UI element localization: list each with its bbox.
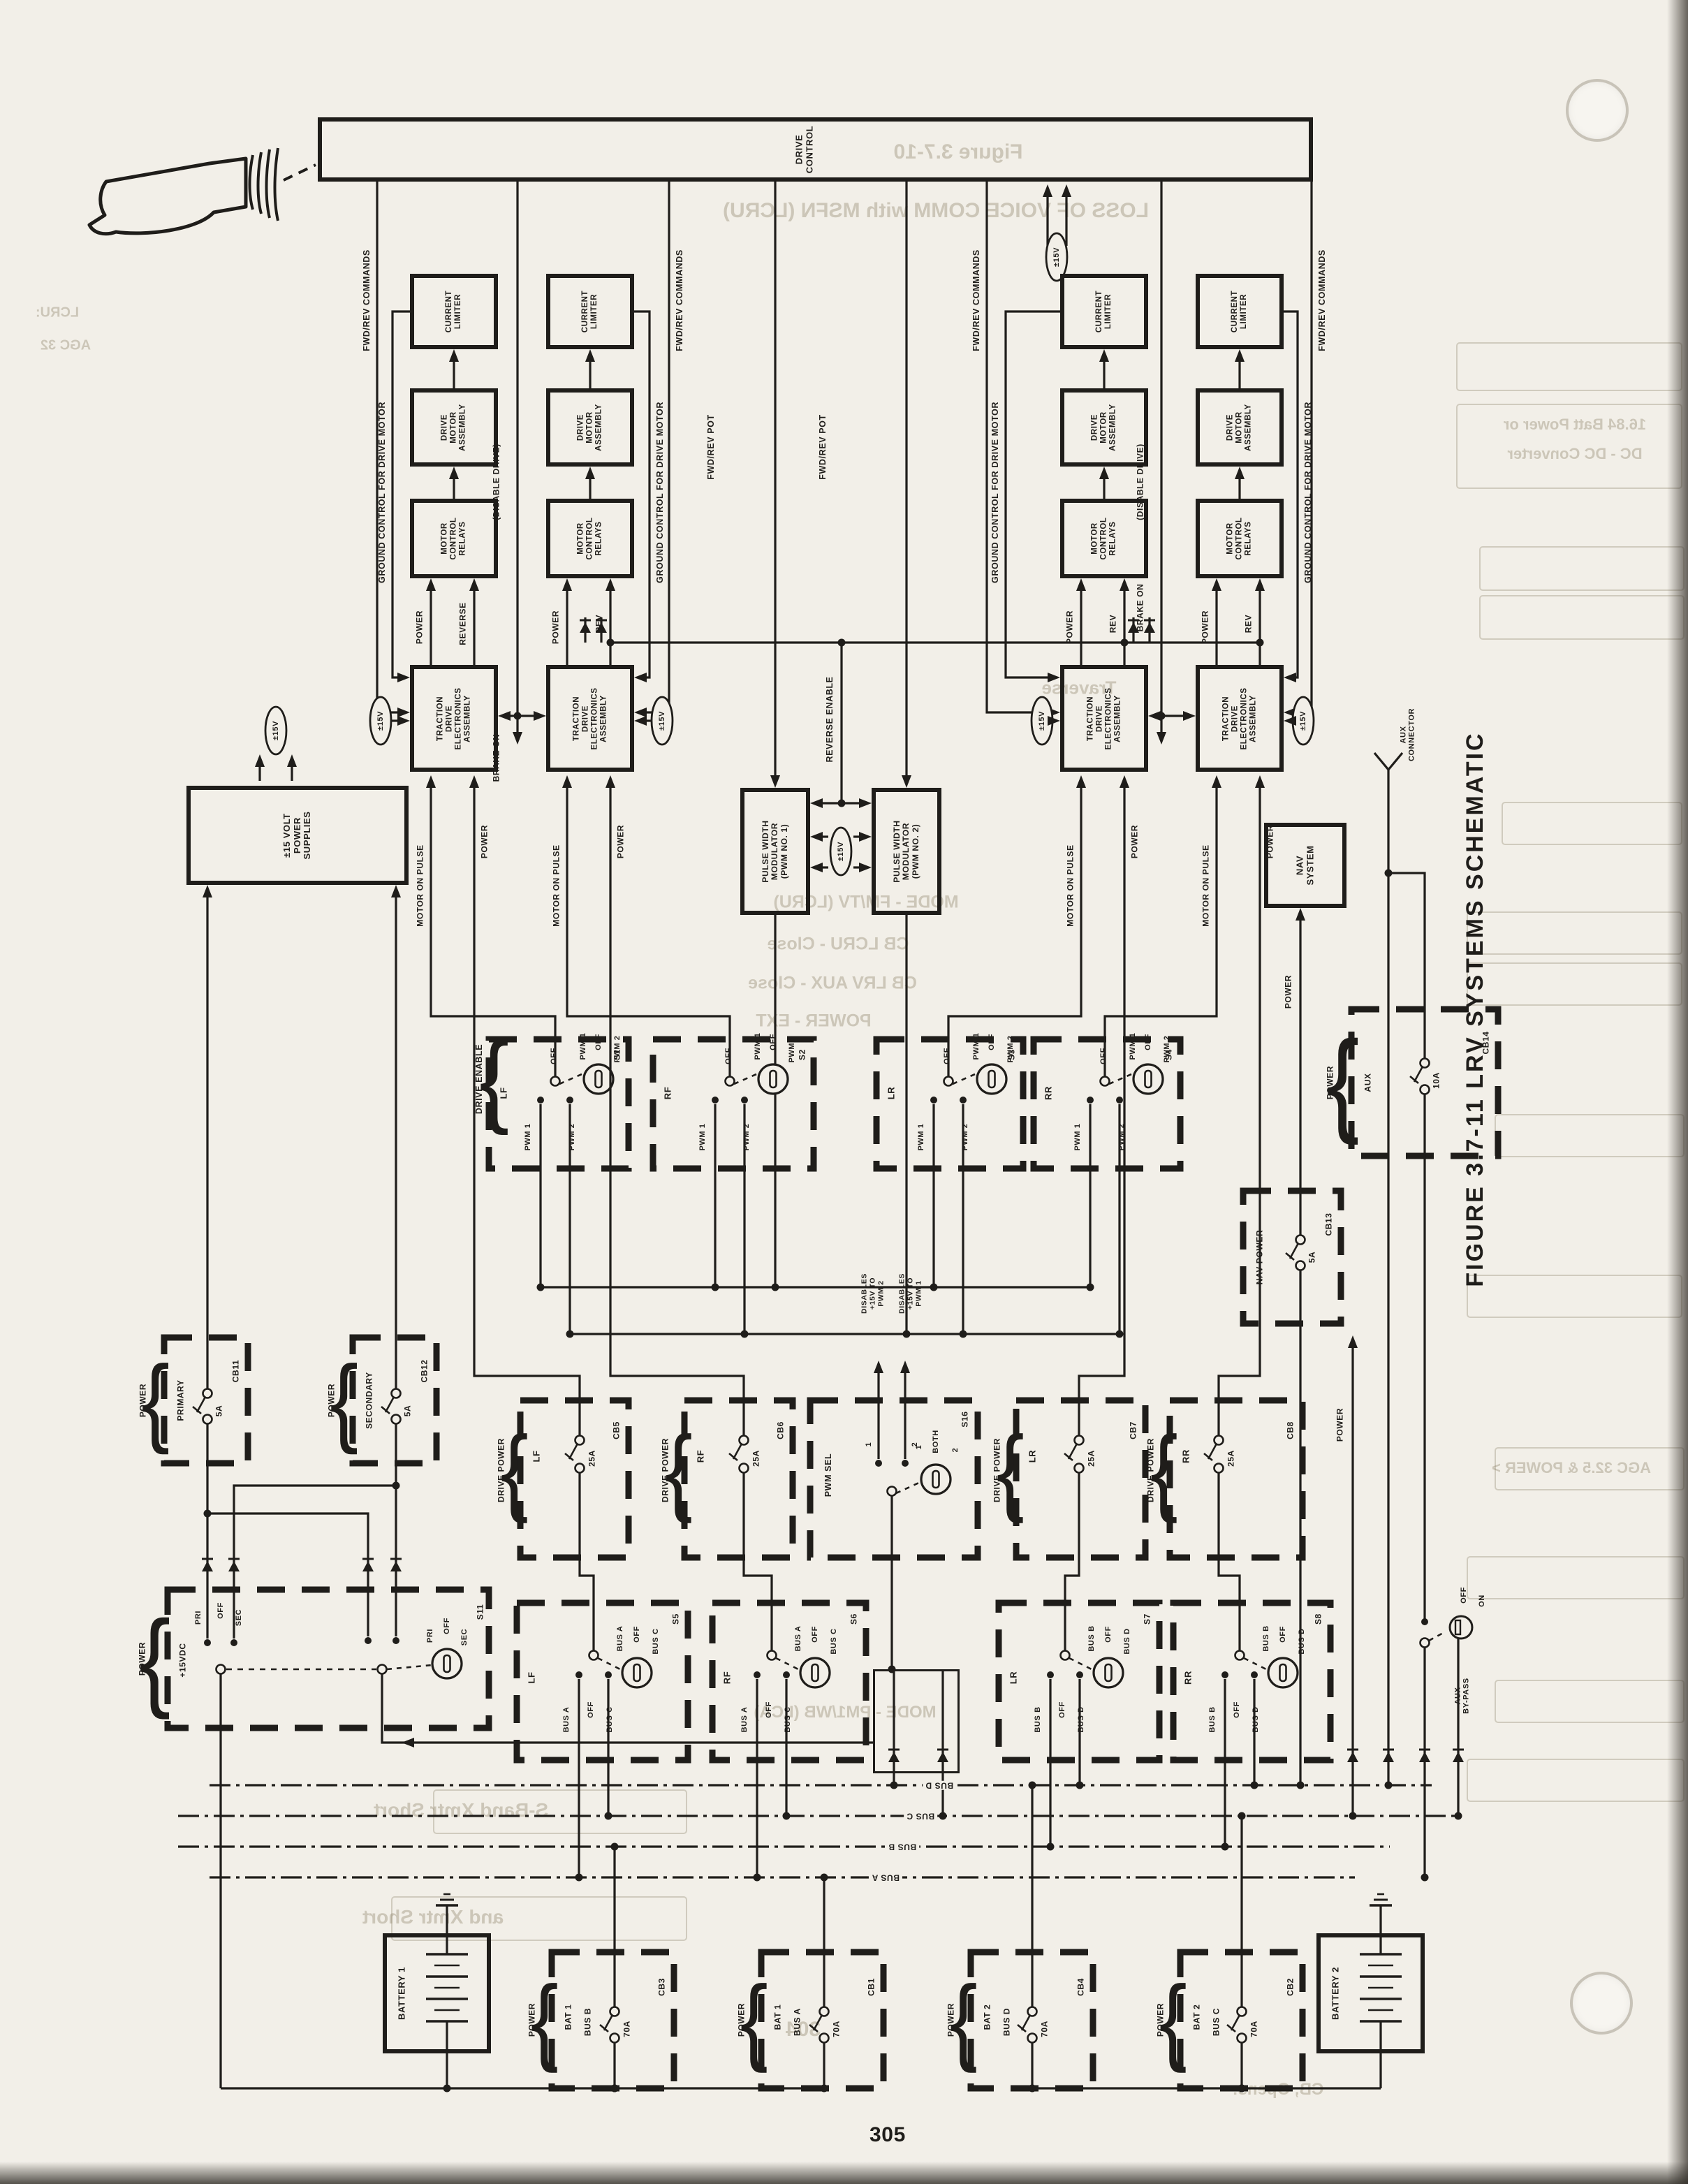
desig-CB8: CB8 xyxy=(1286,1421,1295,1439)
arrowhead-icon xyxy=(1183,711,1196,721)
contact-open xyxy=(203,1415,212,1424)
box-drive-control xyxy=(318,117,1313,182)
cmd-label-lr: FWD/REV COMMANDS xyxy=(971,249,981,351)
dial-rr-a: BUS B xyxy=(1262,1625,1270,1651)
contact-open xyxy=(610,2034,619,2043)
arrowhead-icon xyxy=(426,775,436,788)
dial-pwm2-lf: PWM 2 xyxy=(613,1035,622,1062)
arrowhead-icon xyxy=(1120,578,1129,591)
power-label-lr: POWER xyxy=(1065,610,1074,644)
diode-icon xyxy=(1453,1752,1464,1762)
busname-label-cb4: BUS D xyxy=(1002,2008,1011,2036)
wire xyxy=(234,1486,396,1639)
contact-open xyxy=(820,2007,829,2016)
arrowhead-icon xyxy=(534,711,546,721)
pos-lr-b: BUS D xyxy=(1077,1706,1085,1732)
diode-icon xyxy=(1419,1752,1430,1762)
wheel-rr-power: RR xyxy=(1182,1449,1192,1463)
brace-label-cb1: POWER xyxy=(737,2003,746,2037)
pot-label-2: FWD/REV POT xyxy=(818,414,828,479)
contact-open xyxy=(1421,1639,1430,1648)
rating-CB3: 70A xyxy=(622,2021,631,2037)
label-power-supplies: ±15 VOLT POWER SUPPLIES xyxy=(282,811,313,859)
label-pwm-2: PULSE WIDTH MODULATOR (PWM NO. 2) xyxy=(893,820,920,882)
junction-dot xyxy=(1238,1812,1246,1820)
bat-label-cb1: BAT 1 xyxy=(773,2005,782,2030)
contact-open xyxy=(1214,1436,1224,1445)
pos-rr-a: BUS B xyxy=(1208,1706,1217,1732)
wire xyxy=(567,786,730,1077)
switch-lever xyxy=(1022,2015,1030,2030)
desig-CB7: CB7 xyxy=(1129,1421,1138,1439)
label-lf-3: TRACTION DRIVE ELECTRONICS ASSEMBLY xyxy=(436,687,472,749)
arrowhead-icon xyxy=(859,832,872,842)
dial-pwm1-rr: PWM 1 xyxy=(1129,1032,1137,1060)
wire xyxy=(1388,873,1425,1058)
desig-s11: S11 xyxy=(476,1604,485,1620)
pwr-label-rr: POWER xyxy=(1265,825,1275,858)
brace-label-cb3: POWER xyxy=(527,2003,536,2037)
label-lf-1: DRIVE MOTOR ASSEMBLY xyxy=(441,404,468,451)
rotary-switch-icon xyxy=(977,1064,1006,1094)
arrowhead-icon xyxy=(1048,716,1060,726)
v15-label: ±15V xyxy=(658,711,666,731)
arrowhead-icon xyxy=(585,349,595,362)
rating-CB14: 10A xyxy=(1432,1072,1441,1089)
disable-drive-label-1: (DISABLE DRIVE) xyxy=(1136,444,1145,520)
diode-icon xyxy=(580,622,591,633)
desig-CB11: CB11 xyxy=(231,1360,240,1382)
reverse-enable-label: REVERSE ENABLE xyxy=(825,676,835,762)
arrowhead-icon xyxy=(770,775,780,788)
contact-open xyxy=(392,1415,401,1424)
mop-label-rf: MOTOR ON PULSE xyxy=(552,844,561,927)
junction-dot xyxy=(821,1874,828,1882)
arrowhead-icon xyxy=(1296,908,1305,921)
s11-l-off: OFF xyxy=(216,1602,225,1619)
s11-dial-pri: PRI xyxy=(426,1629,434,1643)
page-number: 305 xyxy=(869,2123,906,2147)
aux-bypass-label: AUX BY-PASS xyxy=(1454,1678,1472,1714)
arrowhead-icon xyxy=(606,578,615,591)
label-lr-2: MOTOR CONTROL RELAYS xyxy=(1091,517,1118,559)
arrowhead-icon xyxy=(426,578,436,591)
wheel-lr-bus: LR xyxy=(1009,1671,1020,1685)
pos-off-lf: OFF xyxy=(550,1048,558,1064)
contact-open xyxy=(378,1665,387,1674)
label-battery-1: BATTERY 1 xyxy=(397,1967,408,2020)
dial-pwm1-lr: PWM 1 xyxy=(972,1032,981,1060)
switch-lever xyxy=(733,1444,742,1459)
diode-icon xyxy=(1347,1752,1358,1762)
arrowhead-icon xyxy=(397,673,410,682)
pos-pwm2-lf: PWM 2 xyxy=(568,1123,576,1150)
arrowhead-icon xyxy=(562,775,572,788)
dashed-group-outline xyxy=(489,1039,629,1168)
bypass-off-label: OFF xyxy=(1460,1587,1468,1604)
s11-label: +15VDC xyxy=(178,1643,187,1677)
pwr-label-lr: POWER xyxy=(1130,825,1139,858)
desig-CB6: CB6 xyxy=(776,1421,785,1439)
pwm-sel-dial-1: 1 xyxy=(915,1445,923,1450)
wire xyxy=(207,1514,368,1636)
mop-label-rr: MOTOR ON PULSE xyxy=(1201,844,1210,927)
switch-lever xyxy=(1208,1444,1217,1459)
label-rf-1: DRIVE MOTOR ASSEMBLY xyxy=(577,404,604,451)
s11-brace-label: POWER xyxy=(138,1642,147,1676)
brace-label-cb14: POWER xyxy=(1326,1066,1335,1099)
gnd-label-rf: GROUND CONTROL FOR DRIVE MOTOR xyxy=(655,402,665,583)
dashed-group-outline xyxy=(517,1603,688,1760)
arrowhead-icon xyxy=(1048,673,1060,682)
junction-dot xyxy=(1087,1284,1094,1291)
contact-dot xyxy=(392,1637,399,1644)
mop-label-lf: MOTOR ON PULSE xyxy=(416,844,425,927)
label-lf-0: CURRENT LIMITER xyxy=(445,291,463,332)
arrowhead-icon xyxy=(1284,716,1296,726)
wheel-rf-enable: RF xyxy=(663,1087,674,1100)
desig-S16: S16 xyxy=(960,1411,969,1427)
pos-pwm1-lf: PWM 1 xyxy=(524,1123,532,1150)
arrowhead-icon xyxy=(397,708,410,717)
rotary-switch-icon xyxy=(584,1064,613,1094)
contact-dot xyxy=(605,1671,612,1678)
drive-power-label-rf: DRIVE POWER xyxy=(661,1438,670,1502)
arrowhead-icon xyxy=(1212,775,1221,788)
contact-open xyxy=(1296,1261,1305,1270)
dashed-group-outline xyxy=(810,1400,978,1558)
arrowhead-icon xyxy=(1120,775,1129,788)
junction-dot xyxy=(939,1812,947,1820)
dashed-group-outline xyxy=(1016,1400,1145,1558)
diode-icon xyxy=(228,1561,240,1571)
desig-CB14: CB14 xyxy=(1481,1031,1490,1054)
arrowhead-icon xyxy=(449,349,459,362)
contact-dot xyxy=(741,1097,748,1104)
drive-power-label-rr: DRIVE POWER xyxy=(1146,1438,1155,1502)
wire xyxy=(392,312,410,677)
busname-label-cb3: BUS B xyxy=(583,2008,592,2036)
power-label-lf: POWER xyxy=(415,610,424,644)
bypass-on-label: ON xyxy=(1478,1595,1486,1607)
switch-lever xyxy=(569,1444,578,1459)
arrowhead-icon xyxy=(902,775,911,788)
pos-rr-b: BUS D xyxy=(1252,1706,1260,1732)
desig-S7: S7 xyxy=(1143,1613,1152,1625)
v15-label: ±15V xyxy=(837,842,845,861)
arrowhead-icon xyxy=(255,754,265,767)
v15-label: ±15V xyxy=(1299,711,1307,731)
pos-pwm1-rf: PWM 1 xyxy=(698,1123,707,1150)
s11-l-sec: SEC xyxy=(235,1609,243,1626)
arrowhead-icon xyxy=(1235,467,1245,479)
contact-open xyxy=(1421,1085,1430,1094)
arrowhead-icon xyxy=(1076,775,1086,788)
junction-dot xyxy=(1421,1874,1429,1882)
arrowhead-icon xyxy=(391,885,401,897)
arrowhead-icon xyxy=(562,578,572,591)
wire xyxy=(776,1658,798,1669)
pos-lf-b: BUS C xyxy=(606,1706,614,1732)
pos-rf-a: BUS A xyxy=(740,1707,749,1733)
label-battery-2: BATTERY 2 xyxy=(1331,1967,1342,2020)
junction-dot xyxy=(1256,639,1264,647)
arrowhead-icon xyxy=(1099,349,1109,362)
switch-lever xyxy=(197,1397,205,1412)
label-lr-1: DRIVE MOTOR ASSEMBLY xyxy=(1091,404,1118,451)
switch-lever xyxy=(814,2015,822,2030)
figure-title: FIGURE 3.7-11 LRV SYSTEMS SCHEMATIC xyxy=(1462,731,1488,1287)
rev-label-rr: REV xyxy=(1244,615,1253,633)
wheel-rf-power: RF xyxy=(696,1450,707,1463)
dial-lf-a: BUS A xyxy=(616,1626,624,1652)
rating-CB11: 5A xyxy=(214,1405,223,1416)
diode-icon xyxy=(362,1561,374,1571)
dial-pwm1-rf: PWM 1 xyxy=(754,1032,762,1060)
wire xyxy=(896,1482,920,1493)
brace-icon: { xyxy=(479,1027,509,1130)
s11-dial-sec: SEC xyxy=(460,1629,469,1646)
contact-dot xyxy=(902,1460,909,1467)
pos-pwm1-lr: PWM 1 xyxy=(917,1123,925,1150)
rotary-switch-icon xyxy=(622,1658,652,1687)
rating-CB13: 5A xyxy=(1307,1251,1316,1263)
contact-dot xyxy=(1087,1097,1094,1104)
dial-pwm2-rf: PWM 2 xyxy=(788,1035,796,1062)
arrowhead-icon xyxy=(1255,775,1265,788)
bus-feed-power-label: POWER xyxy=(1335,1408,1344,1442)
wire xyxy=(1006,312,1060,677)
contact-open xyxy=(768,1651,777,1660)
contact-open xyxy=(589,1651,599,1660)
label-rr-1: DRIVE MOTOR ASSEMBLY xyxy=(1226,404,1254,451)
brake-on-label-1: BRAKE ON xyxy=(1136,584,1145,632)
dial-lr-off: OFF xyxy=(1104,1626,1113,1643)
junction-dot xyxy=(1238,2085,1246,2093)
label-pwm-1: PULSE WIDTH MODULATOR (PWM NO. 1) xyxy=(761,820,789,882)
pos-lr-off: OFF xyxy=(1058,1701,1066,1718)
dial-lr-b: BUS D xyxy=(1123,1628,1131,1654)
wheel-lr-power: LR xyxy=(1028,1450,1039,1463)
disable-drive-label-0: (DISABLE DRIVE) xyxy=(492,444,501,520)
schematic-wiring xyxy=(0,0,1688,2184)
brake-on-label-0: BRAKE ON xyxy=(492,734,501,782)
pos-off-lr: OFF xyxy=(943,1048,951,1064)
contact-open xyxy=(1075,1436,1084,1445)
junction-dot xyxy=(1349,1812,1357,1820)
arrowhead-icon xyxy=(859,863,872,872)
desig-CB5: CB5 xyxy=(612,1421,621,1439)
arrowhead-icon xyxy=(1148,711,1161,721)
dial-off-rr: OFF xyxy=(1144,1034,1152,1050)
desig-CB12: CB12 xyxy=(420,1359,429,1382)
pos-off-rr: OFF xyxy=(1099,1048,1108,1064)
dial-rr-off: OFF xyxy=(1279,1626,1287,1643)
arrowhead-icon xyxy=(498,711,511,721)
gnd-label-lr: GROUND CONTROL FOR DRIVE MOTOR xyxy=(990,402,1000,583)
wheel-lr-enable: LR xyxy=(887,1087,897,1100)
contact-dot xyxy=(1116,1097,1123,1104)
wire xyxy=(1079,786,1124,1435)
arrowhead-icon xyxy=(634,716,647,726)
nav-feed-power-label: POWER xyxy=(1284,975,1293,1009)
desig-CB13: CB13 xyxy=(1324,1212,1333,1236)
dial-pwm2-lr: PWM 2 xyxy=(1006,1035,1015,1062)
label-lr-3: TRACTION DRIVE ELECTRONICS ASSEMBLY xyxy=(1086,687,1122,749)
contact-dot xyxy=(930,1097,937,1104)
contact-dot xyxy=(1421,1618,1428,1625)
dial-off-lf: OFF xyxy=(594,1034,603,1050)
pwm-sel-dial-both: BOTH xyxy=(932,1430,940,1453)
contact-open xyxy=(1028,2007,1037,2016)
rotary-switch-icon xyxy=(921,1465,951,1494)
junction-dot xyxy=(930,1284,938,1291)
pot-label-1: FWD/REV POT xyxy=(706,414,716,479)
dashed-group-outline xyxy=(1170,1400,1302,1558)
brace-label-cb2: POWER xyxy=(1156,2003,1165,2037)
arrowhead-icon xyxy=(1062,184,1071,197)
arrowhead-icon xyxy=(1284,673,1296,682)
pos-rf-b: BUS C xyxy=(784,1706,792,1732)
dial-rf-off: OFF xyxy=(811,1626,819,1643)
dial-pwm1-lf: PWM 1 xyxy=(579,1032,587,1060)
arrowhead-icon xyxy=(1099,467,1109,479)
switch-lever xyxy=(1290,1243,1298,1259)
rev-label-lf: REVERSE xyxy=(458,602,467,645)
dial-pwm2-rr: PWM 2 xyxy=(1163,1035,1171,1062)
rating-CB12: 5A xyxy=(403,1405,412,1416)
rotary-switch-icon xyxy=(1133,1064,1163,1094)
contact-open xyxy=(1421,1059,1430,1068)
contact-dot xyxy=(537,1097,544,1104)
label-rr-2: MOTOR CONTROL RELAYS xyxy=(1226,517,1254,559)
contact-open xyxy=(1028,2034,1037,2043)
pwr-label-rf: POWER xyxy=(616,825,625,858)
busname-label-cb1: BUS A xyxy=(793,2008,802,2036)
s11-l-pri: PRI xyxy=(194,1611,203,1625)
contact-open xyxy=(203,1389,212,1398)
contact-open xyxy=(1235,1651,1245,1660)
desig-S2: S2 xyxy=(798,1049,807,1060)
gnd-label-rr: GROUND CONTROL FOR DRIVE MOTOR xyxy=(1303,402,1313,583)
desig-CB2: CB2 xyxy=(1286,1978,1295,1996)
dial-off-rf: OFF xyxy=(769,1034,777,1050)
arrowhead-icon xyxy=(1255,578,1265,591)
inner-label-cb12: SECONDARY xyxy=(365,1372,374,1429)
rating-CB1: 70A xyxy=(832,2021,841,2037)
arrowhead-icon xyxy=(203,885,212,897)
pos-lf-off: OFF xyxy=(587,1701,595,1718)
disables-pwm2-label: DISABLES +15V TO PWM 2 xyxy=(860,1273,885,1314)
gnd-label-lf: GROUND CONTROL FOR DRIVE MOTOR xyxy=(377,402,387,583)
contact-open xyxy=(1075,1464,1084,1473)
label-rf-2: MOTOR CONTROL RELAYS xyxy=(577,517,604,559)
wire xyxy=(734,1074,756,1084)
rating-CB2: 70A xyxy=(1249,2021,1258,2037)
arrowhead-icon xyxy=(449,467,459,479)
junction-dot xyxy=(566,1331,574,1338)
bat-label-cb3: BAT 1 xyxy=(564,2005,573,2030)
desig-CB4: CB4 xyxy=(1076,1978,1085,1996)
wire xyxy=(1069,1658,1092,1669)
arrowhead-icon xyxy=(397,716,410,726)
rotary-switch-icon xyxy=(432,1649,462,1678)
contact-open xyxy=(726,1077,735,1086)
arrowhead-icon xyxy=(1157,732,1166,745)
pos-rf-off: OFF xyxy=(765,1701,773,1718)
contact-open xyxy=(740,1436,749,1445)
v15-label: ±15V xyxy=(376,711,385,731)
wire xyxy=(598,1658,620,1669)
wire xyxy=(387,1665,432,1669)
arrowhead-icon xyxy=(634,673,647,682)
contact-dot xyxy=(566,1097,573,1104)
wheel-rf-bus: RF xyxy=(723,1671,733,1685)
label-drive-control: DRIVE CONTROL xyxy=(794,126,814,173)
wire xyxy=(1244,1658,1266,1669)
pos-lr-a: BUS B xyxy=(1034,1706,1042,1732)
label-rr-3: TRACTION DRIVE ELECTRONICS ASSEMBLY xyxy=(1221,687,1258,749)
wire xyxy=(1374,753,1388,770)
hand-controller-icon xyxy=(89,148,316,234)
scanned-schematic-page: Figure 3.7-10LOSS OF VOICE COMM with MSF… xyxy=(0,0,1688,2184)
wire xyxy=(1105,786,1217,1077)
dial-lf-b: BUS C xyxy=(652,1628,660,1654)
arrowhead-icon xyxy=(513,732,522,745)
arrowhead-icon xyxy=(287,754,297,767)
pos-pwm2-lr: PWM 2 xyxy=(961,1123,969,1150)
junction-dot xyxy=(712,1284,719,1291)
contact-dot xyxy=(1221,1671,1228,1678)
pos-pwm1-rr: PWM 1 xyxy=(1073,1123,1082,1150)
v15-label: ±15V xyxy=(272,721,280,740)
pos-off-rf: OFF xyxy=(724,1048,733,1064)
box-junction-box xyxy=(873,1669,960,1773)
dial-lf-off: OFF xyxy=(633,1626,641,1643)
pos-rr-off: OFF xyxy=(1233,1701,1241,1718)
bus-label-bus-a: BUS A xyxy=(869,1872,902,1882)
arrowhead-icon xyxy=(810,832,823,842)
junction-dot xyxy=(1385,1782,1393,1789)
rev-label-rf: REV xyxy=(594,615,603,633)
dial-off-lr: OFF xyxy=(988,1034,996,1050)
brace-label-cb12: POWER xyxy=(327,1384,336,1417)
junction-dot xyxy=(537,1284,545,1291)
arrowhead-icon xyxy=(469,578,479,591)
contact-open xyxy=(551,1077,560,1086)
cmd-label-lf: FWD/REV COMMANDS xyxy=(362,249,372,351)
arrowhead-icon xyxy=(585,467,595,479)
arrowhead-icon xyxy=(810,798,823,808)
switch-lever xyxy=(604,2015,612,2030)
contact-dot xyxy=(575,1671,582,1678)
wire xyxy=(1284,312,1298,677)
drive-power-label-lr: DRIVE POWER xyxy=(992,1438,1001,1502)
v15-label: ±15V xyxy=(1038,711,1046,731)
wire xyxy=(634,312,649,677)
junction-dot xyxy=(741,1331,749,1338)
wire xyxy=(610,786,744,1435)
dial-rr-b: BUS D xyxy=(1298,1628,1306,1654)
pos-pwm2-rf: PWM 2 xyxy=(742,1123,751,1150)
diode-icon xyxy=(1383,1752,1394,1762)
contact-open xyxy=(1061,1651,1070,1660)
busname-label-cb2: BUS C xyxy=(1212,2008,1221,2036)
pwm-sel-label: PWM SEL xyxy=(823,1453,833,1497)
dial-rf-a: BUS A xyxy=(794,1626,802,1652)
junction-dot xyxy=(611,1843,619,1851)
contact-open xyxy=(820,2034,829,2043)
